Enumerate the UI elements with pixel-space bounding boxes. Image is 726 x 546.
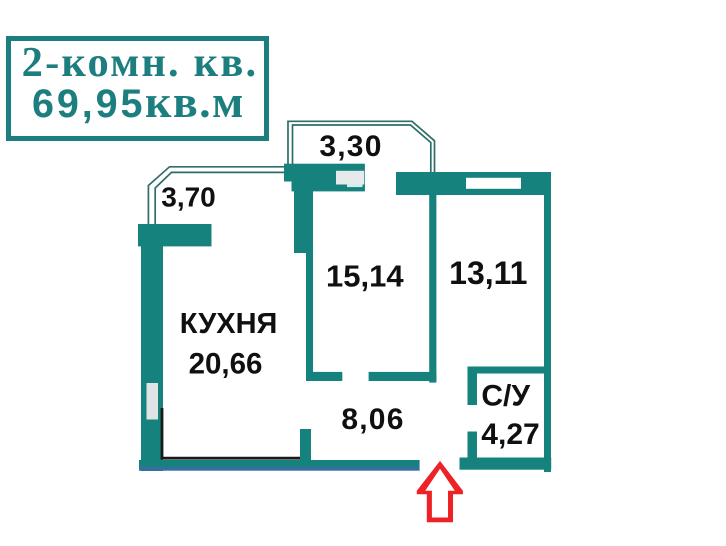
svg-text:20,66: 20,66 [189,347,263,380]
svg-text:15,14: 15,14 [326,258,404,293]
svg-text:69,95: 69,95 [32,82,145,126]
svg-text:кв.м: кв.м [145,76,245,127]
svg-text:4,27: 4,27 [481,418,539,451]
svg-text:13,11: 13,11 [449,255,527,291]
svg-text:3,30: 3,30 [319,130,382,163]
svg-text:КУХНЯ: КУХНЯ [180,308,278,340]
svg-text:С/У: С/У [481,379,530,412]
svg-text:8,06: 8,06 [341,403,404,436]
svg-text:3,70: 3,70 [161,182,216,213]
